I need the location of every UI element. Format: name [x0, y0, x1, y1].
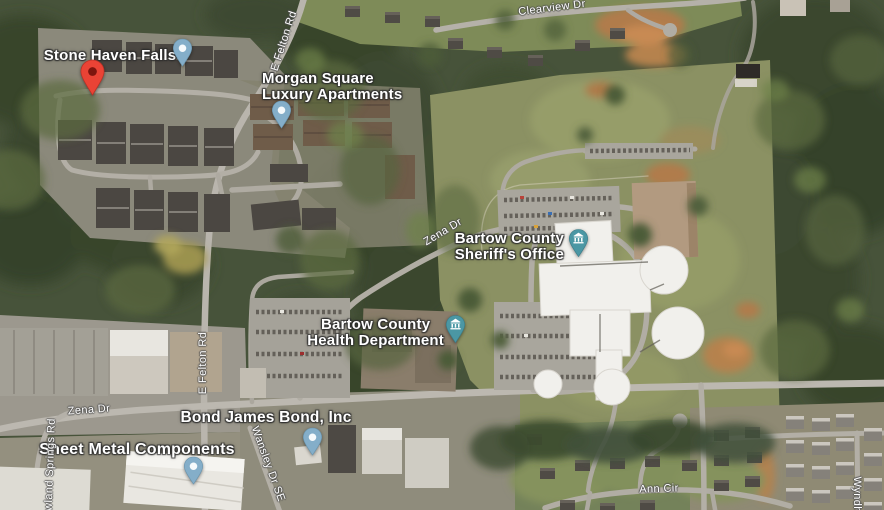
road-label-wyndham: Wyndha — [851, 477, 863, 510]
blue-pin-icon — [183, 456, 204, 486]
map-canvas[interactable]: Stone Haven Falls Morgan Square Luxury A… — [0, 0, 884, 510]
place-label-text: Sheet Metal Components — [39, 442, 235, 458]
place-label-text: Stone Haven Falls — [44, 48, 177, 64]
health-department-civic-marker[interactable] — [445, 314, 466, 350]
bond-james-bond-pin[interactable] — [302, 427, 323, 462]
blue-pin-icon — [271, 100, 292, 130]
stone-haven-falls-pin[interactable] — [172, 38, 193, 73]
sheet-metal-components-pin[interactable] — [183, 456, 204, 491]
place-label-text: Sheriff's Office — [455, 247, 564, 263]
sheriffs-office-civic-marker[interactable] — [568, 228, 589, 264]
place-label-sheriffs-office[interactable]: Bartow County Sheriff's Office — [455, 231, 564, 263]
road-label-ann-cir: Ann Cir — [639, 482, 679, 495]
blue-pin-icon — [302, 427, 323, 457]
place-label-health-department[interactable]: Bartow County Health Department — [307, 317, 444, 349]
satellite-imagery — [0, 0, 884, 510]
saved-place-red-pin[interactable] — [79, 59, 106, 102]
place-label-text: Bond James Bond, Inc — [180, 410, 351, 426]
place-label-text: Bartow County — [307, 317, 444, 333]
place-label-text: Bartow County — [455, 231, 564, 247]
place-label-morgan-square[interactable]: Morgan Square Luxury Apartments — [262, 71, 402, 103]
place-label-text: Morgan Square — [262, 71, 402, 87]
civic-building-icon — [445, 314, 466, 345]
place-label-sheet-metal-components[interactable]: Sheet Metal Components — [39, 442, 235, 458]
civic-building-icon — [568, 228, 589, 259]
place-label-text: Health Department — [307, 333, 444, 349]
morgan-square-pin[interactable] — [271, 100, 292, 135]
red-pin-icon — [79, 59, 106, 97]
blue-pin-icon — [172, 38, 193, 68]
place-label-bond-james-bond[interactable]: Bond James Bond, Inc — [180, 410, 351, 426]
place-label-stone-haven-falls[interactable]: Stone Haven Falls — [44, 48, 177, 64]
road-label-e-felton-rd-south: E Felton Rd — [197, 332, 209, 394]
